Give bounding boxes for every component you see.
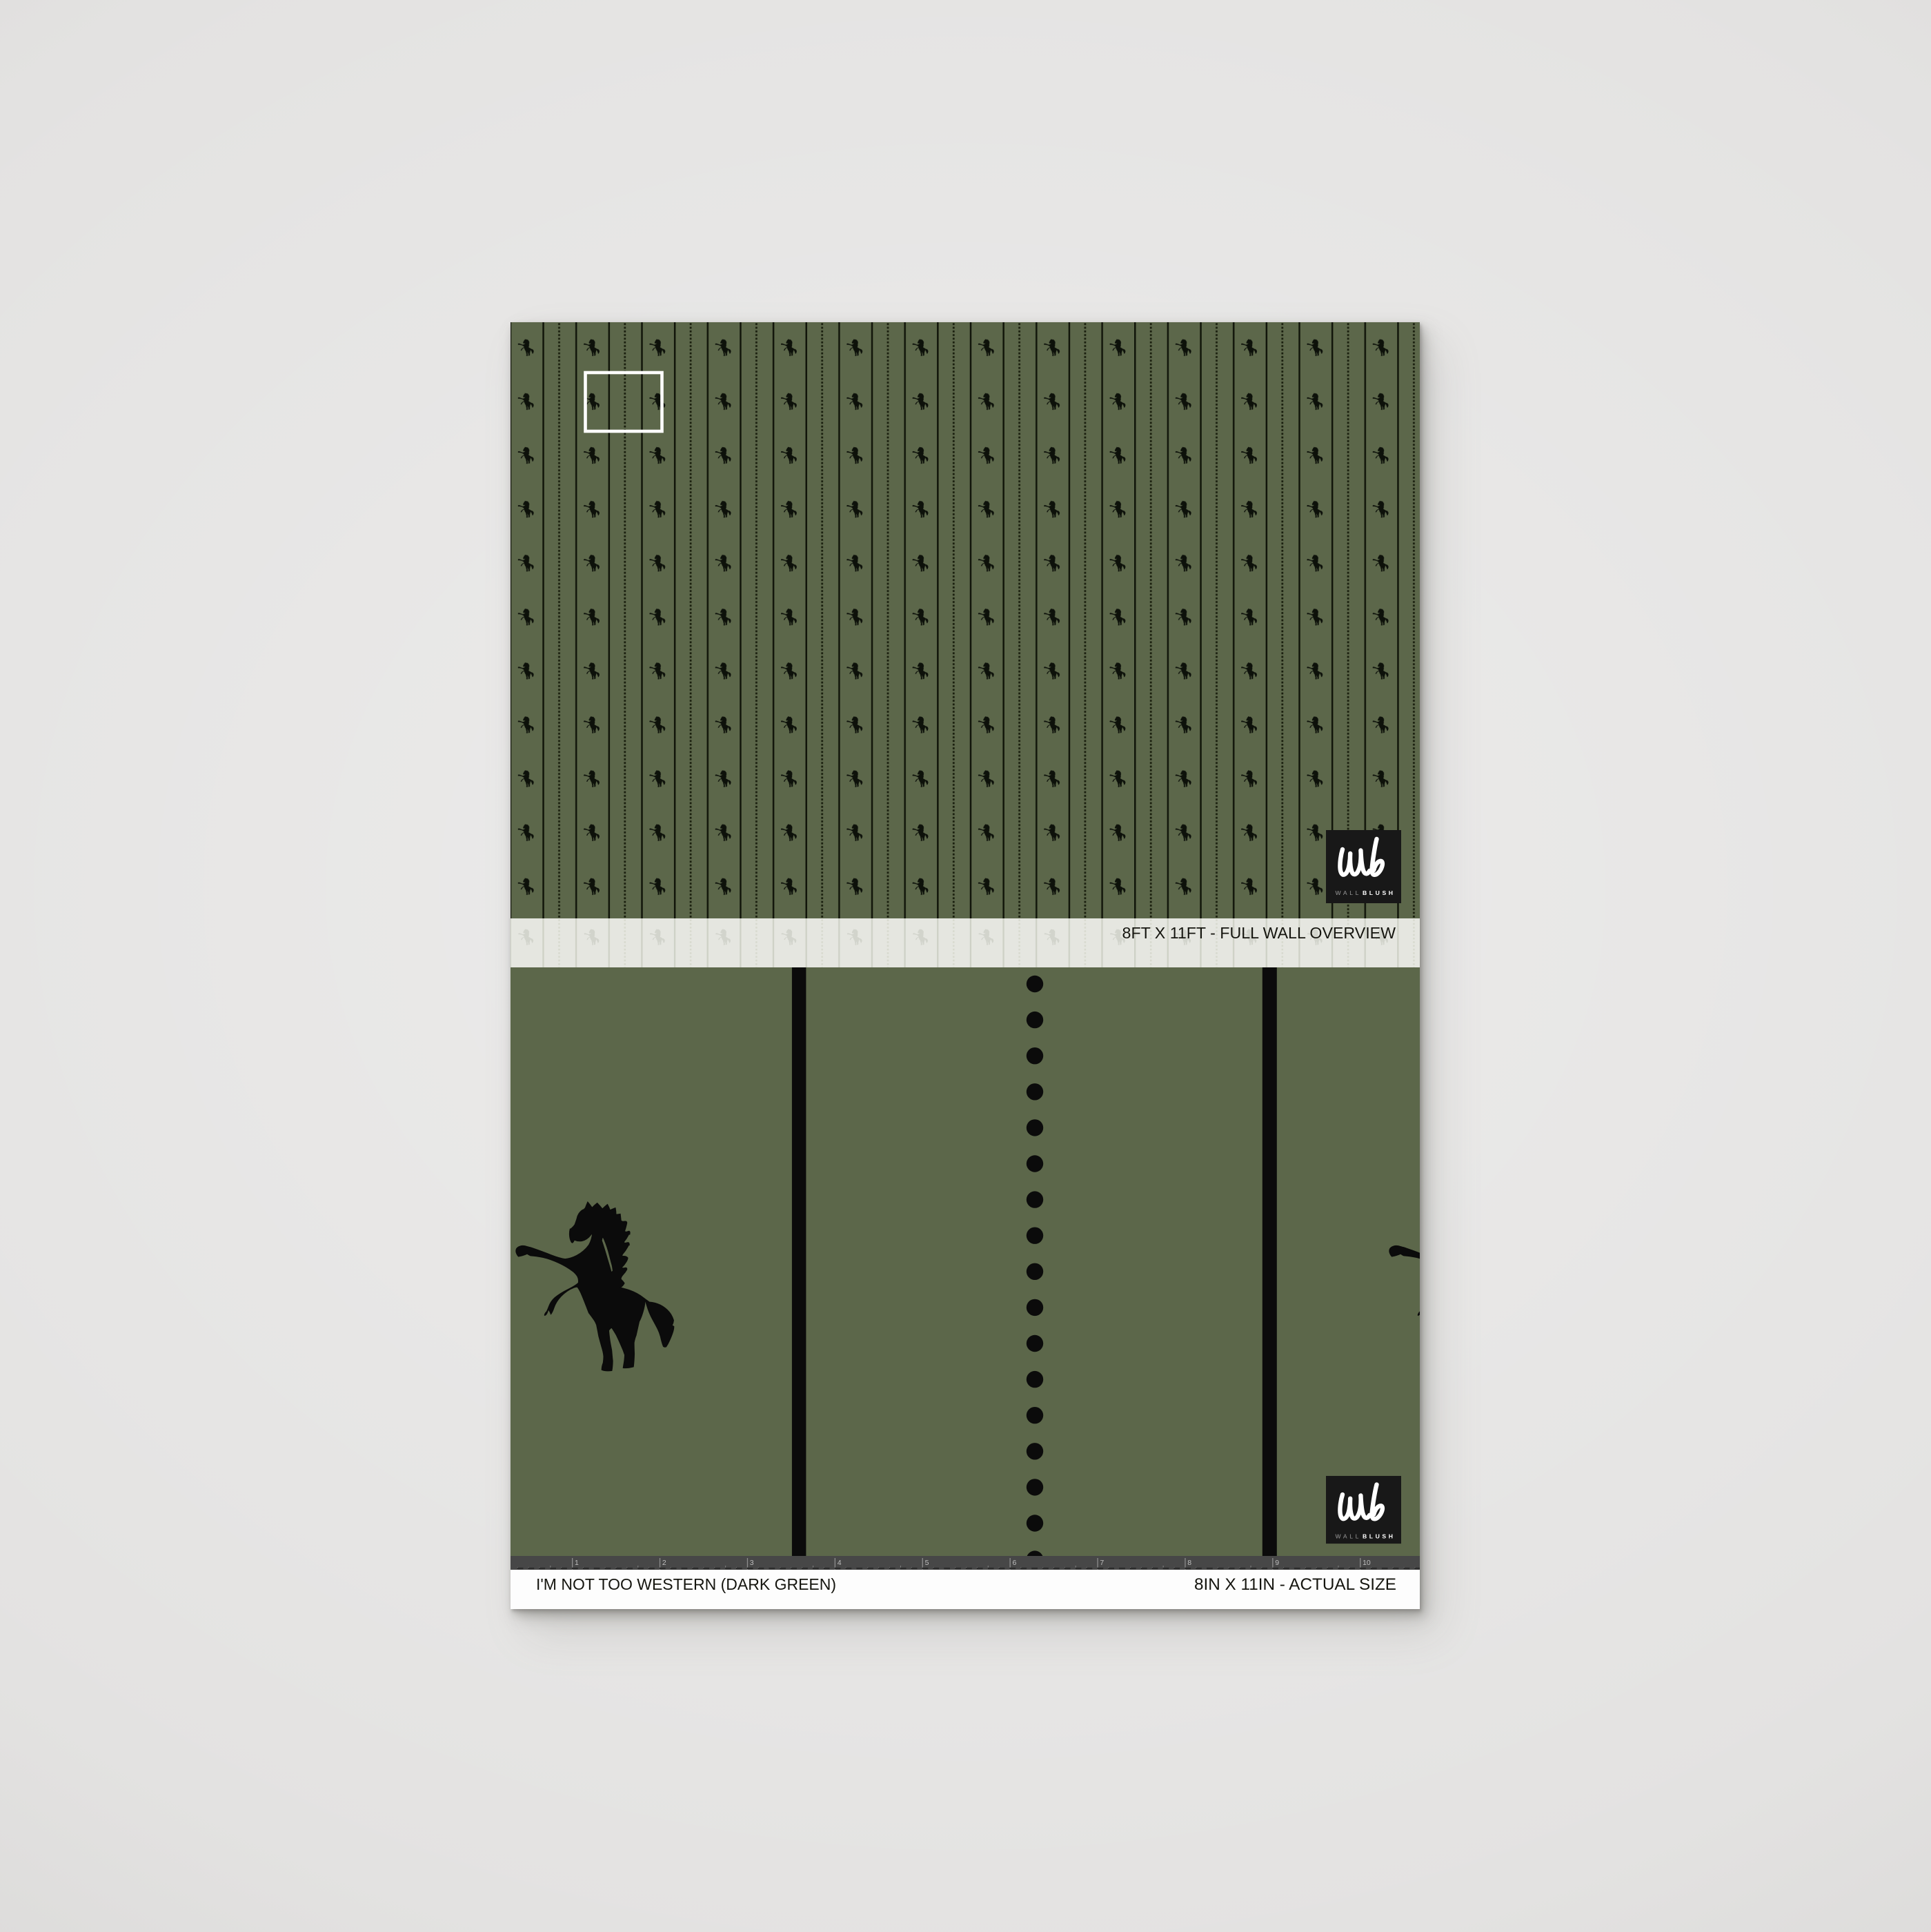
svg-text:9: 9 bbox=[1275, 1559, 1279, 1567]
svg-text:WALL: WALL bbox=[1335, 1533, 1360, 1540]
svg-text:10: 10 bbox=[1363, 1559, 1371, 1567]
svg-text:5: 5 bbox=[925, 1559, 929, 1567]
svg-text:2: 2 bbox=[662, 1559, 666, 1567]
svg-text:4: 4 bbox=[838, 1559, 842, 1567]
svg-text:7: 7 bbox=[1100, 1559, 1104, 1567]
svg-text:WALL: WALL bbox=[1335, 889, 1360, 896]
svg-text:1: 1 bbox=[575, 1559, 579, 1567]
svg-text:3: 3 bbox=[750, 1559, 754, 1567]
svg-text:BLUSH: BLUSH bbox=[1363, 1533, 1396, 1540]
svg-text:6: 6 bbox=[1013, 1559, 1017, 1567]
svg-text:BLUSH: BLUSH bbox=[1363, 889, 1396, 896]
svg-text:8: 8 bbox=[1187, 1559, 1191, 1567]
